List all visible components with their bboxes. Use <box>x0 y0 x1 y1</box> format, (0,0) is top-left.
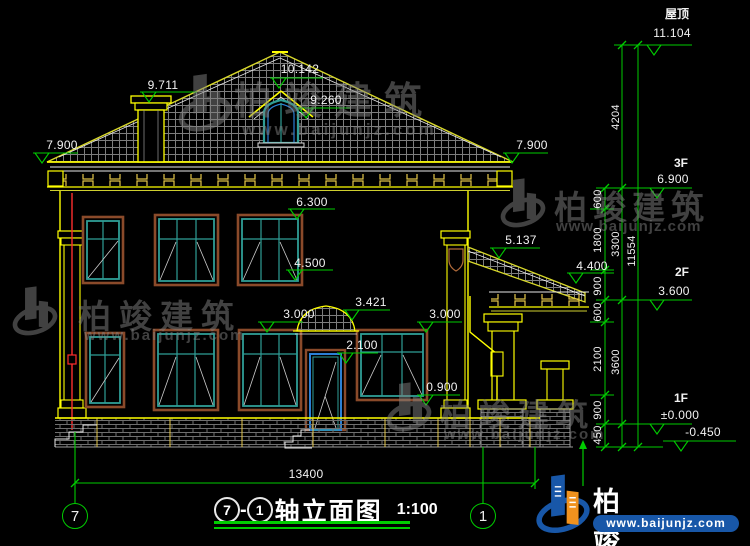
watermark-logo-icon <box>178 72 232 136</box>
mark-porch-eave-label: 4.400 <box>576 259 608 273</box>
cad-elevation-screenshot: 柏竣建筑 www.baijunjz.com 柏竣建筑 www.baijunjz.… <box>0 0 750 546</box>
watermark-url: www.baijunjz.com <box>444 426 605 443</box>
brand-logo-url: www.baijunjz.com <box>593 515 739 532</box>
dim-900-b: 900 <box>592 400 604 419</box>
mark-win1-top-left-label: 3.000 <box>283 307 315 321</box>
window-2f-right <box>238 215 302 285</box>
porch-roof <box>468 247 589 311</box>
dim-3600: 3600 <box>610 349 622 375</box>
grid-bubble-1: 1 <box>470 503 496 529</box>
dim-13400-width: 13400 <box>289 467 324 481</box>
mark-eave-left-label: 7.900 <box>46 138 78 152</box>
mark-door-top-label: 2.100 <box>346 338 378 352</box>
mark-dormer-label: 9.260 <box>310 93 342 107</box>
brand-logo-icon <box>535 474 591 538</box>
main-cornice <box>47 162 513 191</box>
level-roof-name: 屋顶 <box>665 5 689 22</box>
level-1f-name: 1F <box>674 391 688 405</box>
window-2f-left <box>83 217 123 283</box>
level-3f-name: 3F <box>674 156 688 170</box>
level-2f-value: 3.600 <box>658 284 690 298</box>
mark-win2-sill-label: 4.500 <box>294 256 326 270</box>
mark-porch-ridge-label: 5.137 <box>505 233 537 247</box>
title-underline-thick <box>214 521 410 524</box>
dim-1800: 1800 <box>592 227 604 253</box>
downspout-red <box>68 193 76 430</box>
watermark-logo-icon <box>12 284 58 340</box>
title-axis-end: 1 <box>247 497 273 523</box>
window-1f-left <box>86 333 124 407</box>
dim-11554-total: 11554 <box>626 235 638 266</box>
watermark-url: www.baijunjz.com <box>84 327 245 344</box>
mark-win1-top-right-label: 3.000 <box>429 307 461 321</box>
dim-2100: 2100 <box>592 346 604 372</box>
mark-win1-sill-label: 0.900 <box>426 380 458 394</box>
title-underline-thin <box>214 527 410 529</box>
level-ground-value: -0.450 <box>685 425 721 439</box>
dim-600-a: 600 <box>592 189 604 208</box>
title-axis-start: 7 <box>214 497 240 523</box>
porch-downspout <box>470 296 503 400</box>
watermark-logo-icon <box>500 176 546 232</box>
watermark-url: www.baijunjz.com <box>556 218 701 235</box>
level-2f-name: 2F <box>675 265 689 279</box>
grid-bubble-7: 7 <box>62 503 88 529</box>
dim-900-a: 900 <box>592 276 604 295</box>
watermark-logo-icon <box>386 380 432 436</box>
level-1f-value: ±0.000 <box>661 408 699 422</box>
mark-ridge-label: 10.142 <box>281 62 320 76</box>
window-1f-mid-right <box>239 330 301 410</box>
dim-3300: 3300 <box>610 231 622 257</box>
title-scale: 1:100 <box>397 501 438 519</box>
mark-eave-right-label: 7.900 <box>516 138 548 152</box>
dim-4204: 4204 <box>610 104 622 130</box>
mark-win2-top-label: 6.300 <box>296 195 328 209</box>
dim-450: 450 <box>592 425 604 444</box>
dim-600-b: 600 <box>592 302 604 321</box>
level-3f-value: 6.900 <box>657 172 689 186</box>
mark-chimney-label: 9.711 <box>148 78 179 92</box>
title-separator: - <box>240 499 247 522</box>
level-roof-value: 11.104 <box>653 26 691 40</box>
brand-logo-text: 柏竣建筑 <box>593 480 624 546</box>
window-2f-middle <box>155 215 218 285</box>
watermark-url: www.baijunjz.com <box>242 120 437 140</box>
mark-canopy-label: 3.421 <box>355 295 387 309</box>
